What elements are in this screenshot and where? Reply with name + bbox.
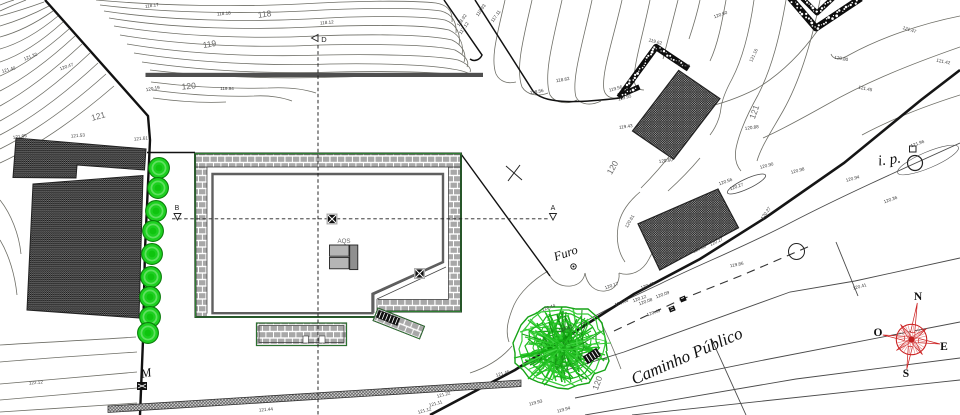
svg-text:i. p.: i. p.	[877, 151, 902, 170]
svg-text:119.94: 119.94	[220, 86, 234, 91]
svg-text:D: D	[321, 35, 327, 44]
svg-text:118: 118	[257, 8, 272, 20]
svg-text:O: O	[874, 327, 883, 339]
svg-text:N: N	[914, 291, 923, 303]
svg-text:120: 120	[181, 80, 196, 91]
svg-text:B: B	[175, 205, 180, 212]
svg-text:E: E	[940, 341, 948, 353]
svg-text:S: S	[903, 368, 909, 380]
svg-text:A: A	[551, 205, 556, 212]
svg-text:AQS: AQS	[337, 238, 350, 245]
